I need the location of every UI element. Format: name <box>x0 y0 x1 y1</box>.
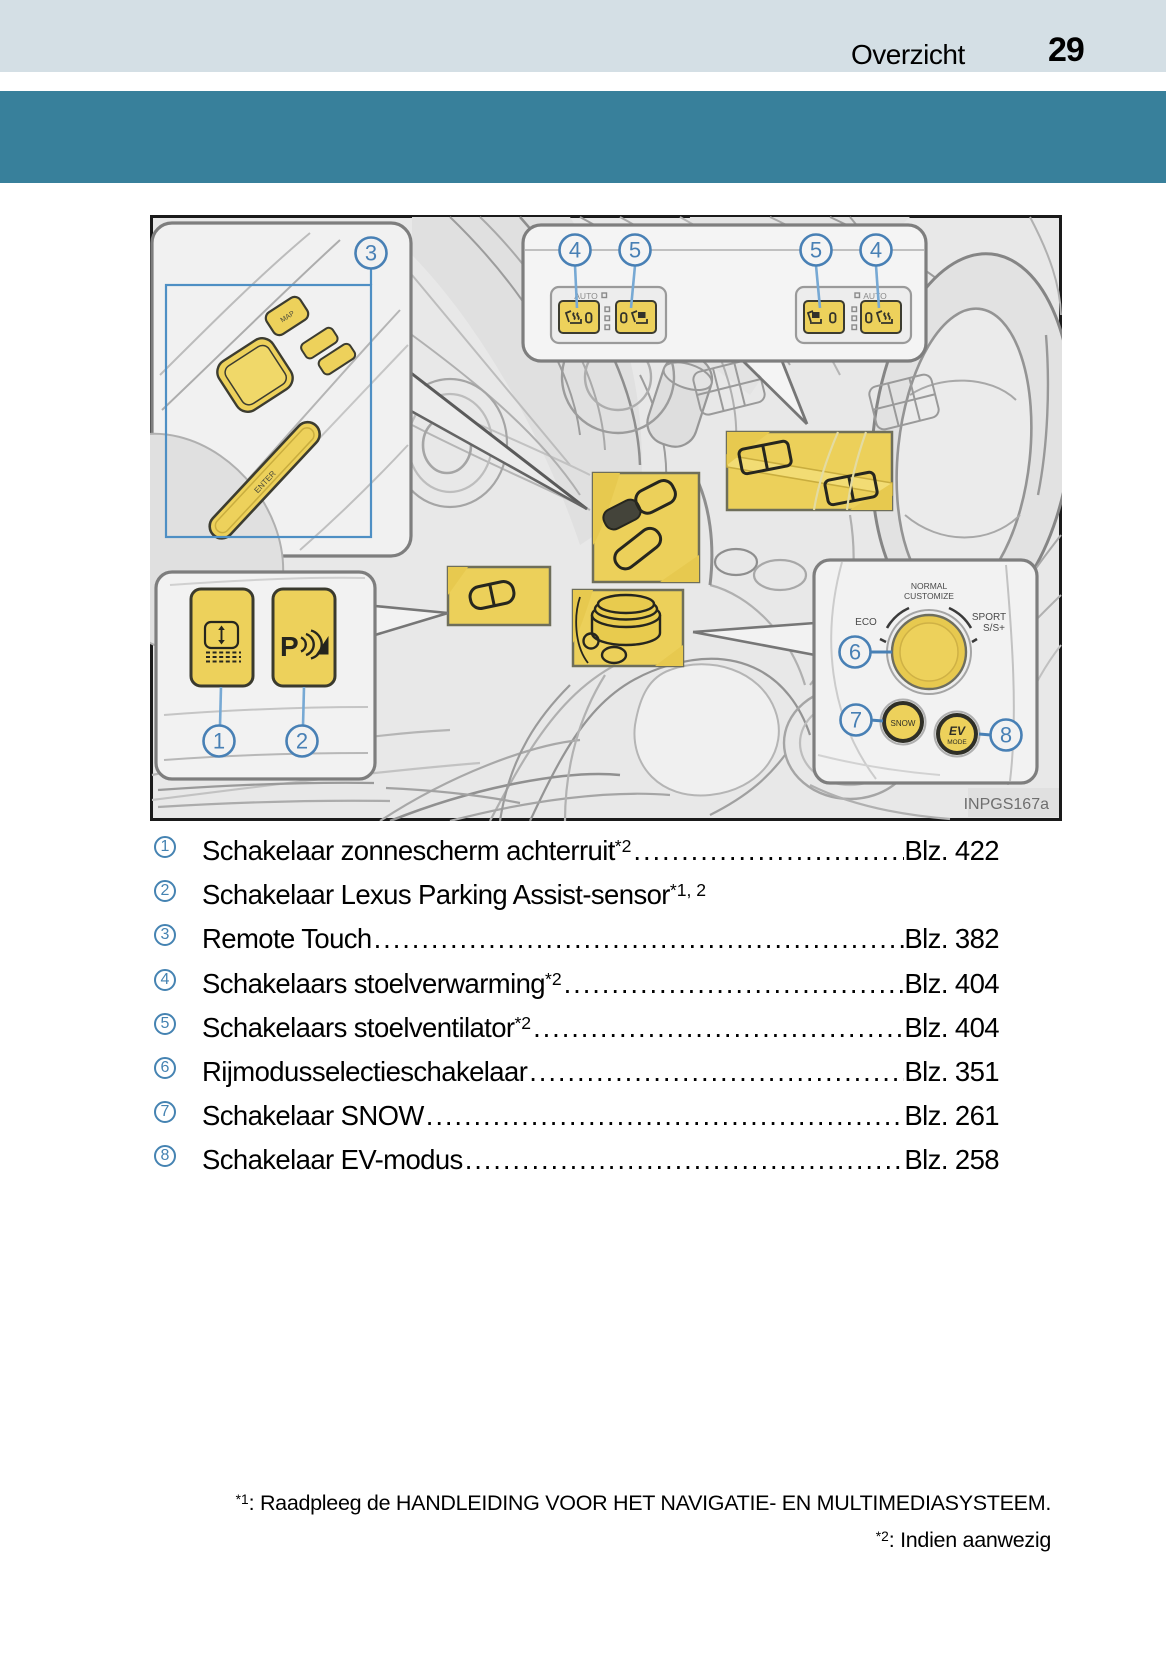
svg-text:AUTO: AUTO <box>863 291 887 301</box>
svg-text:ECO: ECO <box>855 617 877 628</box>
svg-text:SPORT: SPORT <box>972 612 1006 623</box>
svg-text:5: 5 <box>810 238 822 263</box>
svg-text:S/S+: S/S+ <box>983 623 1005 634</box>
svg-text:NORMAL: NORMAL <box>911 581 948 591</box>
svg-text:2: 2 <box>296 729 308 754</box>
svg-text:SNOW: SNOW <box>891 719 916 728</box>
svg-text:INPGS167a: INPGS167a <box>964 796 1049 813</box>
svg-text:P: P <box>280 631 299 662</box>
svg-text:3: 3 <box>365 241 377 266</box>
svg-text:CUSTOMIZE: CUSTOMIZE <box>904 591 954 601</box>
svg-text:1: 1 <box>213 729 225 754</box>
svg-text:4: 4 <box>569 238 581 263</box>
svg-text:4: 4 <box>870 238 882 263</box>
svg-text:MODE: MODE <box>947 739 967 746</box>
svg-text:6: 6 <box>849 640 861 665</box>
svg-text:8: 8 <box>1000 723 1012 748</box>
svg-text:7: 7 <box>850 708 862 733</box>
svg-text:5: 5 <box>629 238 641 263</box>
svg-text:EV: EV <box>949 724 966 738</box>
